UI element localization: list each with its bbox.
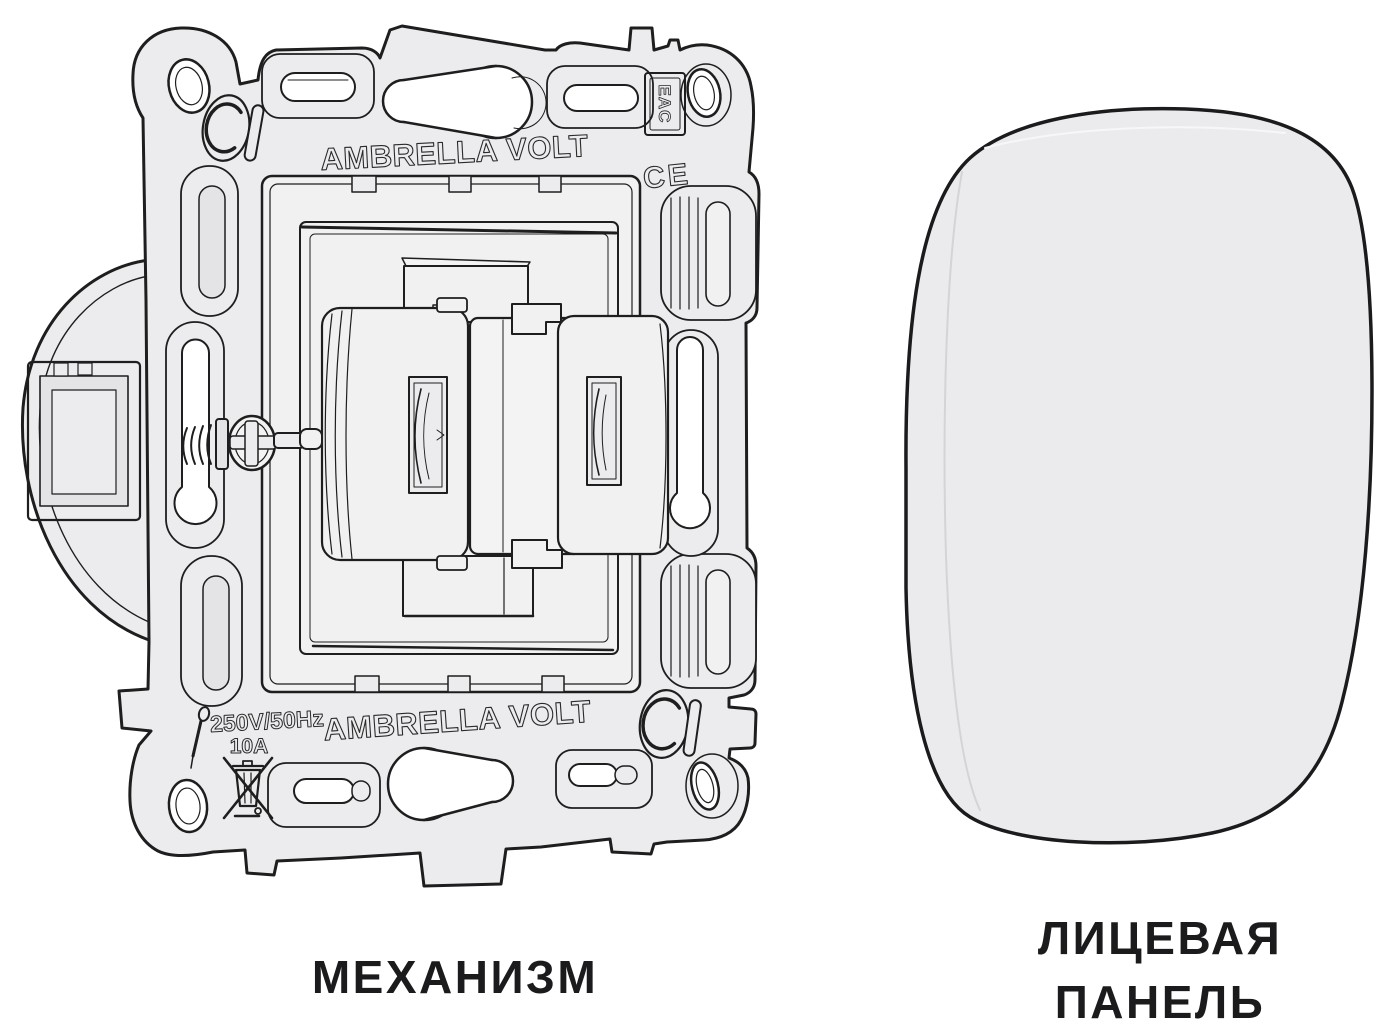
face-panel-drawing bbox=[906, 109, 1372, 843]
product-illustration: AMBRELLA VOLT AMBRELLA VOLT 250V/50Hz 10… bbox=[0, 0, 1383, 1024]
switch-body bbox=[262, 176, 668, 692]
caption-face-panel: ЛИЦЕВАЯ ПАНЕЛЬ bbox=[946, 906, 1374, 1024]
mechanism-drawing: AMBRELLA VOLT AMBRELLA VOLT 250V/50Hz 10… bbox=[22, 26, 759, 886]
ce-mark-text: CE bbox=[642, 158, 693, 196]
face-panel-plate bbox=[906, 109, 1372, 843]
mounting-claw bbox=[22, 260, 149, 640]
caption-face-panel-line1: ЛИЦЕВАЯ bbox=[946, 906, 1374, 970]
rocker-assembly bbox=[322, 298, 668, 570]
illustration-svg: AMBRELLA VOLT AMBRELLA VOLT 250V/50Hz 10… bbox=[0, 0, 1383, 1024]
eac-mark-text: EAC bbox=[655, 85, 674, 124]
current-rating-text: 10A bbox=[230, 735, 269, 758]
phillips-screw-icon bbox=[229, 416, 276, 470]
caption-mechanism: МЕХАНИЗМ bbox=[235, 950, 675, 1004]
caption-face-panel-line2: ПАНЕЛЬ bbox=[946, 970, 1374, 1024]
